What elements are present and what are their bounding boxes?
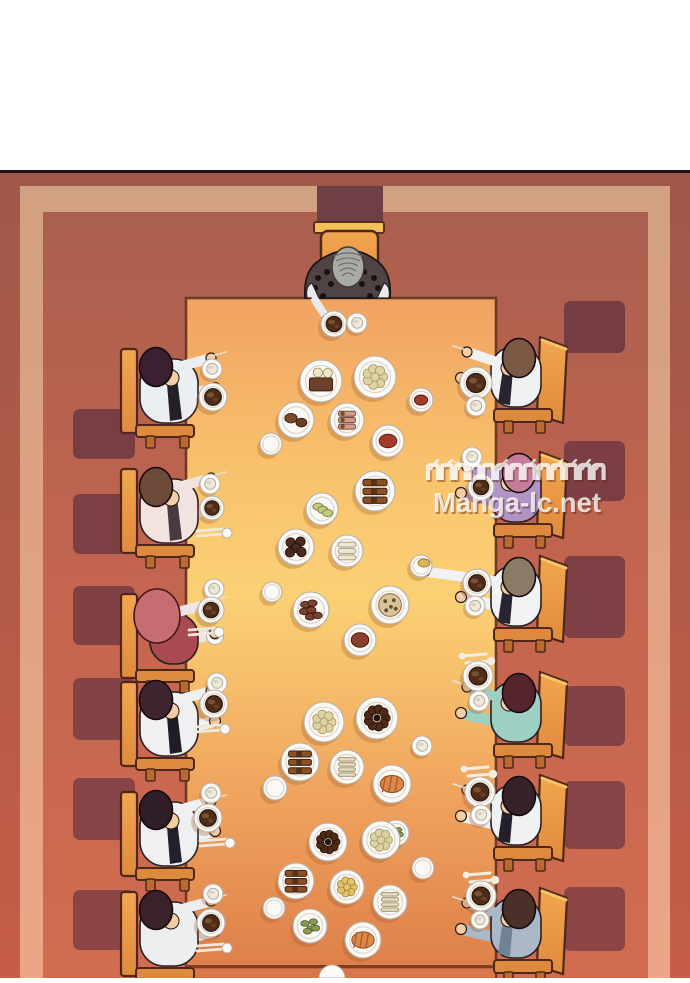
svg-text:Manga-lc.net: Manga-lc.net (433, 487, 601, 518)
